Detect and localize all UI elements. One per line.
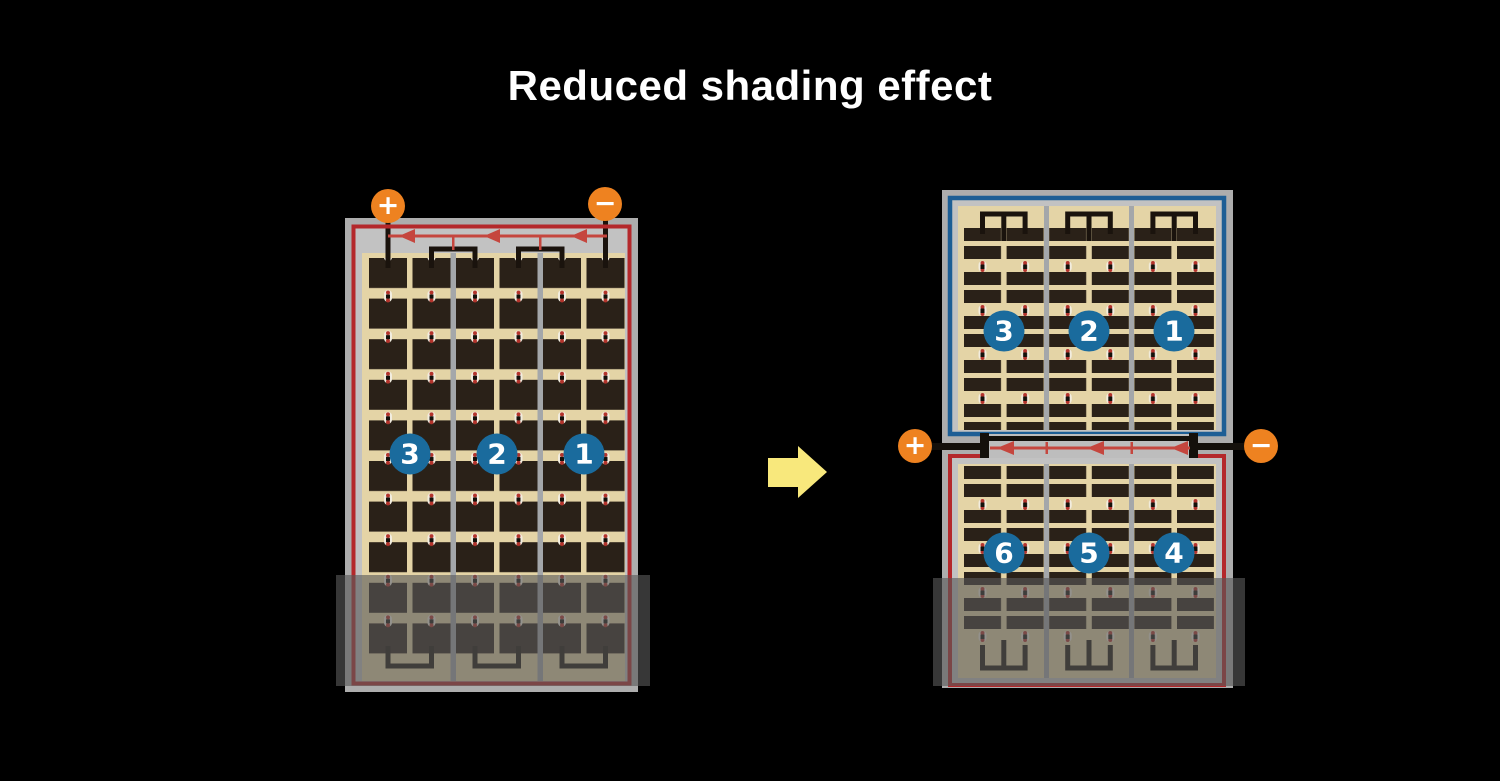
right-bottom-string-6-badge: 6 [984,533,1025,574]
right-top-string-2-badge: 2 [1069,311,1110,352]
infographic-stage: Reduced shading effect [0,0,1500,781]
left-string-2-badge: 2 [477,434,518,475]
right-negative-terminal: − [1244,429,1278,463]
right-bottom-string-5-badge: 5 [1069,533,1110,574]
transition-arrow-icon [768,446,827,498]
positive-lead-wire [928,443,982,450]
negative-lead-wire [1196,443,1250,450]
right-bottom-string-4-badge: 4 [1154,533,1195,574]
right-top-string-1-badge: 1 [1154,311,1195,352]
shading-overlay-left [336,575,650,686]
diagram-canvas [0,0,1500,781]
right-positive-terminal: + [898,429,932,463]
left-string-3-badge: 3 [390,434,431,475]
left-negative-terminal: − [588,187,622,221]
left-positive-terminal: + [371,189,405,223]
shading-overlay-right [933,578,1245,686]
right-top-string-3-badge: 3 [984,311,1025,352]
left-string-1-badge: 1 [564,434,605,475]
